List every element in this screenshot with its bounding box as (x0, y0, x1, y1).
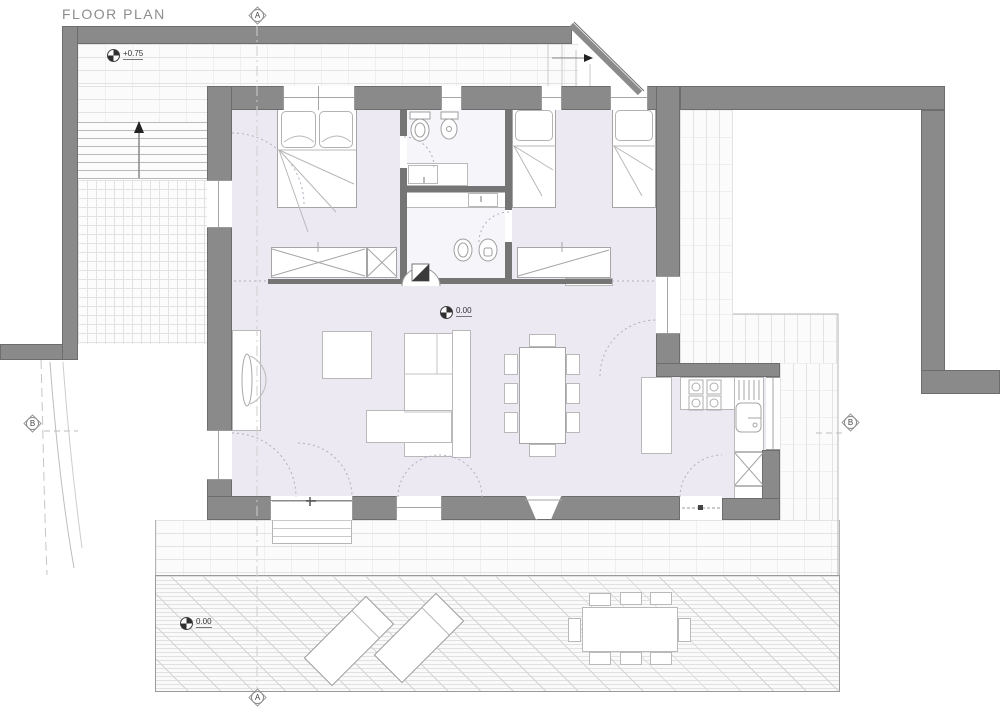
pillow (515, 110, 553, 141)
outdoor-chair (589, 593, 611, 606)
kitchen-wall-south (722, 498, 780, 520)
dining-chair (504, 354, 518, 375)
terrace-wall-left (62, 26, 78, 360)
courtyard-wall-right (921, 110, 945, 372)
section-marker-a-top: A (249, 7, 267, 25)
kitchen-wall-north (656, 363, 780, 377)
level-symbol (440, 306, 453, 319)
level-value: 0.00 (456, 306, 472, 317)
section-letter: A (251, 9, 264, 22)
bedroom2-window-right (610, 86, 648, 110)
bedroom1-window (283, 86, 355, 110)
wardrobe (517, 247, 611, 278)
wardrobe-module (367, 247, 397, 278)
bath1-sink (408, 165, 438, 184)
terrace-wall-top (62, 26, 572, 44)
level-value: +0.75 (123, 49, 143, 60)
upper-terrace-brick-paving (78, 44, 578, 86)
section-marker-b-left: B (24, 415, 42, 433)
terrace-diagonal-mask (574, 24, 650, 86)
outdoor-chair (678, 618, 691, 642)
sideboard (232, 330, 261, 431)
east-window (656, 276, 680, 334)
section-letter: B (844, 416, 857, 429)
level-marker-upper-terrace: +0.75 (107, 49, 143, 62)
terrace-wall-return (0, 344, 63, 360)
dining-chair (529, 444, 556, 457)
outdoor-chair (589, 652, 611, 665)
bath-wall-south (400, 278, 512, 284)
kitchen-counter-sink-run (734, 377, 764, 452)
outdoor-chair (620, 652, 642, 665)
kitchen-east-window (766, 377, 780, 450)
dining-chair (504, 383, 518, 404)
refrigerator (734, 452, 764, 486)
left-terrace-tiles (78, 180, 207, 344)
kitchen-exterior-door (680, 496, 722, 520)
kitchen-island (641, 377, 672, 454)
coffee-table (322, 331, 372, 379)
window-mullion (318, 86, 319, 110)
sofa-chaise (366, 410, 452, 443)
dining-chair (566, 354, 580, 375)
page-title: FLOOR PLAN (62, 6, 166, 22)
outdoor-chair (650, 652, 672, 665)
exterior-stairs (78, 122, 207, 180)
terrain-line (50, 362, 74, 568)
level-value: 0.00 (196, 617, 212, 628)
lower-terrace-brick-band (155, 520, 840, 575)
level-marker-interior: 0.00 (440, 306, 472, 319)
bath2-door-opening (505, 210, 512, 242)
bath-wall-divider (400, 186, 512, 192)
upper-terrace-brick-left (78, 86, 207, 122)
wood-deck (155, 575, 840, 692)
bedroom2-window-left (541, 86, 562, 110)
outdoor-chair (568, 618, 581, 642)
bath-wall-east (505, 110, 512, 284)
outdoor-chair (620, 592, 642, 605)
sliding-door (270, 496, 353, 520)
floor-plan-canvas: FLOOR PLAN (0, 0, 1000, 707)
section-letter: B (26, 417, 39, 430)
outdoor-table (582, 607, 678, 652)
property-line (41, 360, 47, 575)
level-marker-lower-terrace: 0.00 (180, 617, 212, 630)
section-marker-a-bottom: A (249, 689, 267, 707)
exterior-step-landing (272, 520, 352, 544)
level-symbol (107, 49, 120, 62)
living-west-window (207, 430, 232, 480)
pillow (319, 111, 353, 148)
bedroom2-partition (512, 279, 612, 284)
dining-table (519, 347, 566, 444)
diagonal-wall (571, 25, 640, 93)
living-south-window (396, 496, 442, 520)
courtyard-wall-return (921, 370, 1000, 394)
bathroom-window (441, 86, 462, 110)
pillow (615, 110, 653, 141)
bath2-sink (468, 193, 498, 207)
bedroom1-west-window (207, 180, 232, 228)
courtyard-wall-top (680, 86, 945, 110)
courtyard-path-brick (680, 110, 733, 314)
dining-chair (566, 383, 580, 404)
bedroom1-partition (268, 279, 400, 284)
section-marker-b-right: B (842, 414, 860, 432)
ramp-arrow-head (584, 54, 593, 62)
dining-chair (529, 334, 556, 347)
pillow (281, 111, 316, 148)
dining-chair (566, 412, 580, 433)
diagonal-wall-edge (574, 22, 644, 91)
bath1-door-opening (400, 136, 407, 168)
outdoor-chair (650, 592, 672, 605)
level-symbol (180, 617, 193, 630)
dining-chair (504, 412, 518, 433)
sofa-backrest (452, 330, 471, 458)
courtyard-brick-band (680, 314, 838, 363)
wardrobe (271, 247, 367, 278)
terrain-line (63, 362, 82, 548)
section-letter: A (251, 691, 264, 704)
